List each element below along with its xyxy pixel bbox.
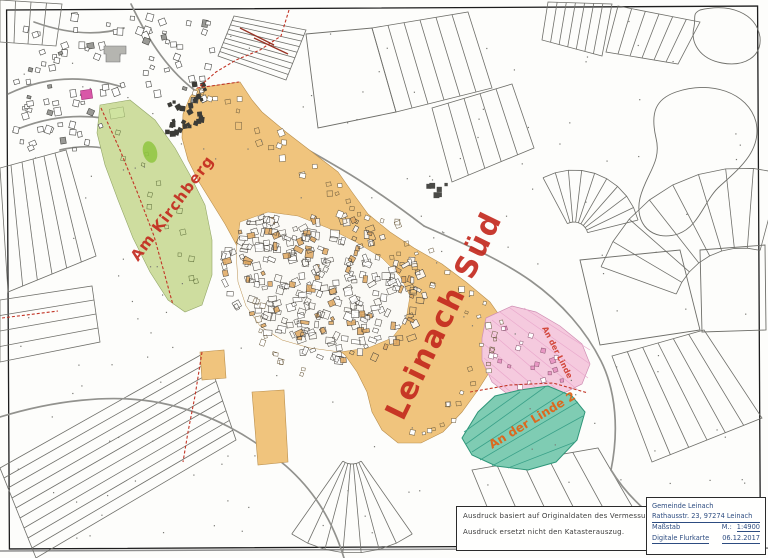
house [146, 13, 154, 22]
speck [227, 500, 228, 501]
village-building [373, 290, 379, 295]
house [171, 42, 177, 47]
speck [575, 394, 576, 395]
speck [571, 380, 572, 381]
parcel-line [20, 401, 223, 518]
speck [414, 92, 415, 93]
speck [18, 469, 19, 470]
parcel-line [223, 43, 292, 64]
village-building [222, 270, 228, 277]
house [172, 100, 175, 103]
village-building [341, 336, 348, 342]
scale-label: Maßstab [652, 524, 680, 531]
speck [181, 143, 182, 144]
speck [111, 364, 112, 365]
parcel-line [593, 4, 602, 54]
speck [332, 401, 333, 402]
speck [227, 455, 228, 456]
speck [242, 531, 243, 532]
speck [90, 88, 91, 89]
speck [160, 382, 161, 383]
house [49, 64, 56, 71]
village-building [411, 277, 414, 283]
speck [107, 495, 108, 496]
parcel-line [568, 3, 576, 47]
speck [508, 247, 509, 248]
speck [654, 450, 655, 451]
speck [442, 231, 443, 232]
speck [163, 532, 164, 533]
parcel-line [11, 165, 23, 286]
house [300, 372, 304, 376]
speck [528, 127, 529, 128]
speck [144, 166, 145, 167]
village-building [305, 250, 314, 258]
scale-row: Maßstab M.: 1:4900 [652, 523, 760, 534]
speck [638, 156, 639, 157]
house [93, 53, 101, 61]
speck [735, 133, 736, 134]
village-building [388, 266, 396, 273]
speck [52, 416, 53, 417]
address-row: Rathausstr. 23, 97274 Leinach [652, 511, 760, 522]
speck [569, 122, 570, 123]
maptype-row: Digitale Flurkarte 06.12.2017 [652, 534, 760, 545]
village-building [234, 303, 240, 310]
village-building [363, 275, 368, 283]
house [560, 379, 564, 383]
speck [152, 113, 153, 114]
house [52, 101, 59, 106]
speck [620, 479, 621, 480]
speck [162, 294, 163, 295]
house [479, 343, 483, 346]
disclaimer-line1: Ausdruck basiert auf Originaldaten des V… [463, 512, 647, 520]
village-building [227, 291, 234, 296]
parcel-line [0, 328, 98, 347]
speck [362, 91, 363, 92]
speck [76, 538, 77, 539]
speck [530, 408, 531, 409]
speck [73, 238, 74, 239]
village-building [254, 281, 260, 287]
speck [673, 61, 674, 62]
speck [433, 237, 434, 238]
speck [261, 141, 262, 142]
speck [515, 333, 516, 334]
map-date: 06.12.2017 [722, 535, 760, 543]
parcel-line [576, 3, 584, 49]
village-building [359, 311, 365, 317]
village-building [380, 294, 387, 302]
parcel-line [14, 1, 16, 43]
house [548, 371, 551, 374]
speck [89, 535, 90, 536]
village-building [255, 244, 264, 252]
house [161, 34, 167, 40]
speck [432, 179, 433, 180]
speck [72, 393, 73, 394]
parcel-line [32, 430, 233, 548]
house [173, 53, 181, 61]
parcel-line [643, 347, 689, 447]
village-building [273, 242, 277, 250]
village-building [243, 260, 251, 265]
house [106, 23, 110, 27]
house [380, 218, 384, 223]
speck [460, 158, 461, 159]
parcel-line [4, 362, 209, 478]
village-building [292, 235, 297, 240]
speck [483, 109, 484, 110]
village-building [329, 321, 334, 324]
house [61, 42, 69, 50]
house [158, 18, 166, 26]
house [162, 31, 166, 34]
village-building [284, 284, 289, 289]
speck [347, 490, 348, 491]
speck [150, 332, 151, 333]
speck [372, 532, 373, 533]
house [279, 155, 286, 162]
municipality-name: Gemeinde Leinach [652, 503, 713, 510]
house [27, 101, 34, 107]
speck [152, 441, 153, 442]
house [26, 79, 31, 85]
house [422, 432, 425, 435]
house [102, 84, 109, 90]
parcel-line [16, 391, 219, 508]
speck [616, 366, 617, 367]
municipality-address: Rathausstr. 23, 97274 Leinach [652, 513, 752, 520]
house [193, 98, 198, 103]
house [312, 164, 317, 168]
village-building [263, 240, 270, 246]
map-type: Digitale Flurkarte [652, 535, 709, 543]
house [259, 339, 266, 346]
house [79, 42, 85, 49]
parcel-line [0, 300, 94, 316]
parcel-line [673, 339, 725, 433]
house [146, 81, 152, 87]
speck [725, 437, 726, 438]
house [451, 418, 456, 422]
village-building [299, 273, 305, 280]
village-building [232, 300, 242, 310]
house [188, 75, 195, 82]
parcel-line [642, 14, 659, 58]
house [175, 61, 182, 68]
house [301, 368, 305, 371]
parcel-line [698, 174, 721, 251]
house [410, 429, 416, 435]
parcel-line [22, 162, 37, 280]
speck [419, 490, 420, 491]
parcel-line [673, 185, 710, 256]
speck [127, 97, 128, 98]
scale-value: 1:4900 [737, 524, 760, 532]
speck [203, 148, 204, 149]
speck [85, 197, 86, 198]
village-building [352, 310, 359, 318]
house [260, 303, 266, 309]
village-building [336, 344, 343, 351]
house [60, 137, 66, 144]
disclaimer-line2: Ausdruck ersetzt nicht den Katasterauszu… [463, 528, 647, 536]
speck [587, 56, 588, 57]
speck [78, 365, 79, 366]
village-building [371, 305, 380, 311]
house [23, 26, 29, 33]
speck [628, 21, 629, 22]
house [74, 28, 78, 33]
speck [241, 348, 242, 349]
highlighted-building [80, 89, 92, 99]
house [299, 173, 306, 179]
speck [407, 178, 408, 179]
village-building [344, 287, 353, 296]
parcel-line [28, 2, 31, 44]
speck [147, 357, 148, 358]
house [338, 183, 343, 187]
parcel-line [551, 2, 558, 42]
speck [303, 106, 304, 107]
village-building [276, 329, 282, 333]
speck [744, 483, 745, 484]
speck [486, 48, 487, 49]
parcel-line [24, 411, 226, 528]
speck [537, 263, 538, 264]
parcel-line [28, 420, 229, 538]
village-building [247, 232, 255, 239]
house [500, 320, 504, 324]
parcel-outline [0, 286, 100, 362]
house [149, 56, 154, 61]
title-block: Gemeinde Leinach Rathausstr. 23, 97274 L… [646, 497, 766, 555]
speck [135, 168, 136, 169]
house [199, 115, 203, 119]
village-building [298, 292, 307, 298]
parcel-line [726, 169, 735, 249]
speck [182, 283, 183, 284]
house [70, 129, 77, 135]
speck [638, 45, 639, 46]
speck [585, 202, 586, 203]
house [117, 28, 123, 35]
speck [379, 71, 380, 72]
house [394, 220, 401, 228]
speck [658, 355, 659, 356]
village-building [316, 354, 323, 360]
speck [429, 176, 430, 177]
speck [81, 385, 82, 386]
parcel-outline [218, 16, 306, 80]
village-building [402, 276, 406, 282]
village-building [316, 219, 321, 227]
speck [323, 525, 324, 526]
village-building [333, 280, 339, 286]
house [35, 67, 40, 72]
speck [101, 515, 102, 516]
village-building [268, 281, 273, 286]
parcel-line [585, 196, 626, 227]
house [54, 107, 62, 116]
house [192, 81, 198, 87]
village-building [357, 349, 363, 356]
speck [670, 483, 671, 484]
speck [276, 375, 277, 376]
speck [193, 474, 194, 475]
house [518, 385, 523, 390]
parcel-outline [0, 150, 96, 292]
speck [172, 347, 173, 348]
parcel-line [44, 156, 67, 268]
green-parcel [109, 107, 125, 119]
house [179, 106, 185, 112]
house [27, 95, 31, 99]
parcel-outline [343, 461, 361, 464]
house [434, 192, 440, 198]
speck [745, 314, 746, 315]
speck [477, 137, 478, 138]
speck [532, 449, 533, 450]
village-building [391, 322, 396, 330]
speck [740, 145, 741, 146]
speck [215, 158, 216, 159]
house [498, 359, 502, 363]
speck [137, 318, 138, 319]
speck [118, 275, 119, 276]
public-building [104, 46, 126, 62]
house [182, 86, 187, 90]
speck [347, 122, 348, 123]
scale-prefix: M.: [722, 524, 732, 531]
speck [436, 262, 437, 263]
speck [248, 507, 249, 508]
speck [656, 252, 657, 253]
speck [365, 516, 366, 517]
parcel-line [627, 352, 670, 455]
village-building [265, 228, 272, 234]
speck [514, 69, 515, 70]
parcel-line [747, 168, 753, 248]
house [112, 87, 121, 96]
house [47, 84, 52, 88]
speck [311, 95, 312, 96]
house [205, 63, 212, 70]
house [177, 45, 183, 49]
parcel-line [581, 179, 607, 224]
house [213, 97, 218, 101]
speck [408, 492, 409, 493]
speck [166, 312, 167, 313]
parcel-line [227, 34, 297, 52]
village-building [310, 348, 316, 353]
house [84, 139, 90, 145]
house [259, 329, 263, 333]
speck [35, 157, 36, 158]
speck [301, 197, 302, 198]
house [13, 79, 19, 85]
house [426, 184, 431, 189]
house [44, 99, 50, 105]
house [170, 122, 175, 127]
village-building [302, 346, 309, 354]
house [486, 369, 491, 373]
parcel-outline [372, 12, 492, 112]
speck [594, 423, 595, 424]
parcel-outline [612, 330, 762, 462]
house [87, 108, 95, 116]
speck [374, 446, 375, 447]
house [165, 39, 170, 44]
house [20, 140, 24, 144]
parcel-line [496, 89, 518, 155]
house [502, 327, 506, 331]
house [540, 348, 545, 353]
parcel-outline [606, 6, 700, 64]
disclaimer-box: Ausdruck basiert auf Originaldaten des V… [456, 506, 654, 551]
house [237, 97, 242, 102]
speck [132, 301, 133, 302]
village-building [222, 279, 229, 288]
parcel-line [568, 170, 572, 222]
house [22, 112, 30, 120]
village-building [305, 246, 311, 250]
speck [603, 273, 604, 274]
speck [91, 176, 92, 177]
house [47, 110, 54, 116]
speck [278, 358, 279, 359]
parcel-line [601, 267, 676, 294]
parcel-line [448, 103, 468, 175]
speck [487, 484, 488, 485]
parcel-line [559, 3, 566, 45]
house [165, 130, 170, 135]
village-building [238, 230, 242, 234]
speck [742, 479, 743, 480]
house [427, 429, 432, 433]
speck [157, 266, 158, 267]
speck [387, 48, 388, 49]
speck [214, 525, 215, 526]
parcel-line [33, 159, 52, 274]
speck [568, 482, 569, 483]
speck [441, 251, 442, 252]
house [37, 126, 43, 132]
speck [123, 259, 124, 260]
speck [330, 33, 331, 34]
house [182, 123, 188, 129]
village-building [263, 330, 272, 336]
house [130, 16, 135, 20]
house [200, 76, 206, 81]
house [534, 362, 539, 367]
house [58, 123, 63, 127]
parcel-line [613, 242, 682, 283]
village-building [289, 281, 296, 287]
speck [555, 444, 556, 445]
speck [247, 148, 248, 149]
parcel-line [8, 372, 213, 488]
speck [28, 317, 29, 318]
speck [478, 119, 479, 120]
speck [24, 74, 25, 75]
house [493, 353, 498, 358]
speck [150, 266, 151, 267]
parcel-line [630, 11, 645, 56]
speck [82, 86, 83, 87]
